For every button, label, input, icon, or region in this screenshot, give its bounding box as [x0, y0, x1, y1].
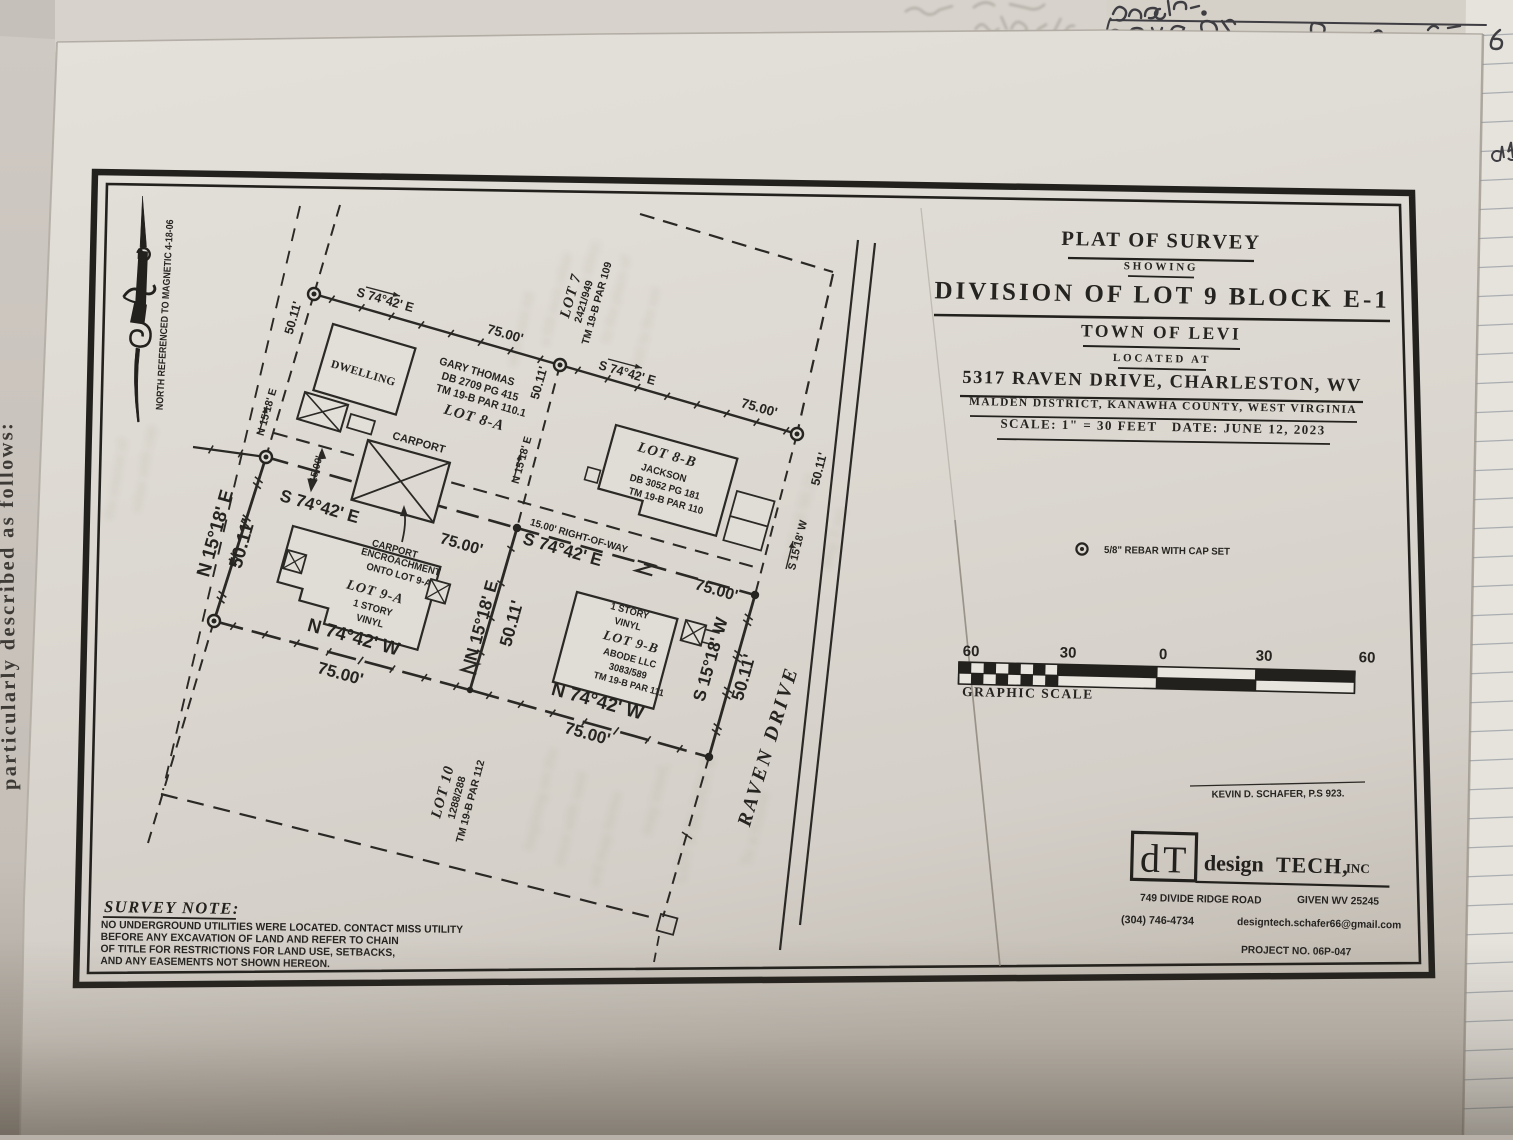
- svg-text:0: 0: [1159, 646, 1168, 663]
- svg-text:60: 60: [963, 643, 980, 660]
- svg-text:30: 30: [1060, 644, 1077, 661]
- svg-text:5/8" REBAR WITH CAP SET: 5/8" REBAR WITH CAP SET: [1104, 545, 1230, 558]
- svg-text:60: 60: [1359, 649, 1376, 666]
- svg-text:PLAT OF SURVEY: PLAT OF SURVEY: [1061, 228, 1261, 254]
- svg-text:design: design: [1204, 850, 1265, 876]
- svg-text:30: 30: [1256, 648, 1273, 665]
- svg-text:(304) 746-4734: (304) 746-4734: [1121, 914, 1194, 928]
- svg-text:GIVEN WV 25245: GIVEN WV 25245: [1297, 895, 1379, 908]
- svg-text:LOCATED AT: LOCATED AT: [1113, 352, 1211, 366]
- svg-text:TECH,: TECH,: [1276, 852, 1349, 879]
- svg-text:d: d: [1139, 836, 1160, 881]
- svg-text:SURVEY NOTE:: SURVEY NOTE:: [104, 897, 240, 918]
- svg-text:SHOWING: SHOWING: [1124, 260, 1199, 274]
- svg-text:KEVIN D. SCHAFER, P.S 923.: KEVIN D. SCHAFER, P.S 923.: [1211, 788, 1344, 800]
- svg-text:T: T: [1162, 839, 1186, 882]
- svg-text:TOWN OF LEVI: TOWN OF LEVI: [1081, 320, 1242, 343]
- svg-text:GRAPHIC SCALE: GRAPHIC SCALE: [962, 684, 1094, 702]
- svg-text:INC: INC: [1346, 861, 1370, 877]
